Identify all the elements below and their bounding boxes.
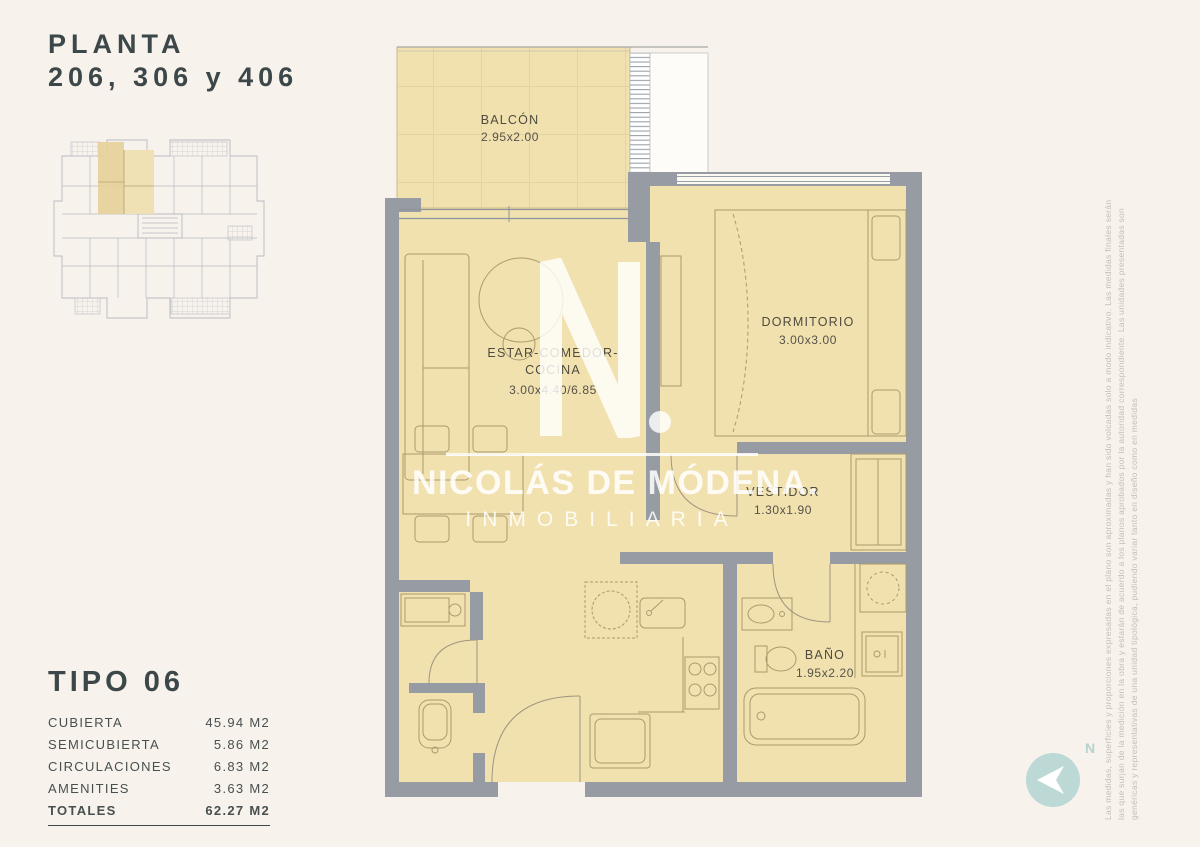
wall-corner-block [628,172,650,242]
north-arrow-icon: N [1015,726,1110,816]
unit-summary: TIPO 06 CUBIERTA 45.94 M2 SEMICUBIERTA 5… [48,666,270,833]
wall-bath-top-right [830,552,906,564]
area-label: SEMICUBIERTA [48,737,160,752]
room-label-estar-2: COCINA [525,363,581,377]
wall-bath-top-left [737,552,773,564]
room-label-estar-1: ESTAR-COMEDOR- [487,346,618,360]
room-dims-estar: 3.00x4.40/6.85 [509,383,597,397]
room-label-vestidor: VESTIDOR [746,485,820,499]
legal-disclaimer: Las medidas, superficies y proporciones … [1102,8,1141,820]
room-label-balcon: BALCÓN [481,112,540,127]
room-dims-vestidor: 1.30x1.90 [754,503,812,517]
room-dims-balcon: 2.95x2.00 [481,130,539,144]
building-overview-plan [42,126,277,326]
wall-bottom-left [385,782,498,797]
wall-toilette-right-b [473,753,485,782]
page-title-line2: 206, 306 y 406 [48,61,298,94]
page-title: PLANTA 206, 306 y 406 [48,28,298,94]
wall-bedroom-vestidor [737,442,906,454]
area-value: 5.86 M2 [214,737,270,752]
table-row: AMENITIES 3.63 M2 [48,781,270,796]
area-table: CUBIERTA 45.94 M2 SEMICUBIERTA 5.86 M2 C… [48,715,270,826]
compass: N [1015,726,1110,821]
table-row: CIRCULACIONES 6.83 M2 [48,759,270,774]
room-label-dormitorio: DORMITORIO [761,315,854,329]
unit-type-title: TIPO 06 [48,666,270,699]
room-label-bano: BAÑO [805,648,845,662]
wall-kitchen-top [620,552,723,564]
area-value: 3.63 M2 [214,781,270,796]
table-row: CUBIERTA 45.94 M2 [48,715,270,730]
overview-highlighted-unit [98,142,154,214]
room-dims-bano: 1.95x2.20 [796,666,854,680]
area-label: CIRCULACIONES [48,759,172,774]
wall-bath-left [723,552,737,782]
wall-left [385,198,399,782]
table-row-total: TOTALES 62.27 M2 [48,803,270,826]
disclaimer-line: genéricas y representativas de una unida… [1128,8,1141,820]
area-value: 6.83 M2 [214,759,270,774]
total-value: 62.27 M2 [205,803,270,818]
floorplan: BALCÓN 2.95x2.00 ESTAR-COMEDOR- COCINA 3… [385,38,930,803]
wall-toilette-right-a [473,693,485,713]
wall-laundry-top [398,580,470,592]
disclaimer-line: las que surjan de la medición en la obra… [1115,8,1128,820]
open-terrace-void [650,53,708,178]
area-label: AMENITIES [48,781,130,796]
wall-living-bedroom-divider [646,242,660,520]
room-dims-dormitorio: 3.00x3.00 [779,333,837,347]
area-label: CUBIERTA [48,715,123,730]
page-title-line1: PLANTA [48,28,298,61]
wall-laundry-mid [409,683,485,693]
wall-bottom-right [585,782,922,797]
north-label: N [1085,740,1095,756]
table-row: SEMICUBIERTA 5.86 M2 [48,737,270,752]
total-label: TOTALES [48,803,117,818]
floorplan-drawing: BALCÓN 2.95x2.00 ESTAR-COMEDOR- COCINA 3… [385,38,930,803]
area-value: 45.94 M2 [205,715,270,730]
wall-laundry-stub [470,592,483,640]
wall-right [906,172,922,797]
disclaimer-line: Las medidas, superficies y proporciones … [1102,8,1115,820]
